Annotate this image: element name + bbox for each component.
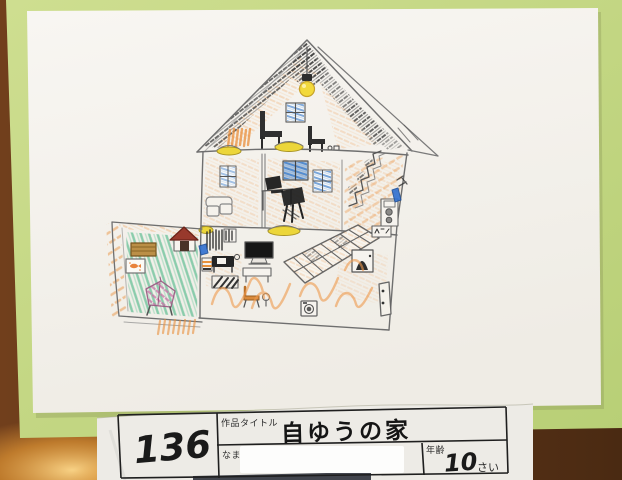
photo-of-child-drawing: 136 作品タイトル 自ゆうの家 なま 年齢 10 さい bbox=[0, 0, 622, 480]
blue-box bbox=[199, 244, 208, 255]
aquarium bbox=[126, 259, 145, 273]
photo-scene: 136 作品タイトル 自ゆうの家 なま 年齢 10 さい bbox=[0, 0, 622, 480]
second-floor bbox=[203, 151, 404, 233]
age-value: 10 bbox=[443, 447, 478, 477]
door bbox=[379, 282, 391, 316]
letter-box bbox=[372, 226, 391, 237]
wall-shelf bbox=[381, 199, 398, 226]
striped-rug-box bbox=[212, 276, 238, 288]
entry-card: 136 作品タイトル 自ゆうの家 なま 年齢 10 さい bbox=[97, 404, 533, 480]
title-label: 作品タイトル bbox=[221, 417, 278, 429]
window bbox=[283, 161, 308, 180]
name-label: なま bbox=[222, 450, 241, 461]
name-redaction bbox=[240, 446, 404, 473]
striped-cabinet bbox=[202, 258, 212, 271]
window bbox=[220, 166, 236, 187]
age-unit: さい bbox=[477, 461, 499, 474]
brown-chest bbox=[131, 243, 156, 256]
title-value: 自ゆうの家 bbox=[281, 417, 412, 447]
attic-window bbox=[286, 103, 305, 122]
washing-machine bbox=[301, 301, 317, 316]
sofa bbox=[206, 197, 232, 216]
window bbox=[313, 170, 332, 192]
entry-number: 136 bbox=[132, 423, 213, 473]
